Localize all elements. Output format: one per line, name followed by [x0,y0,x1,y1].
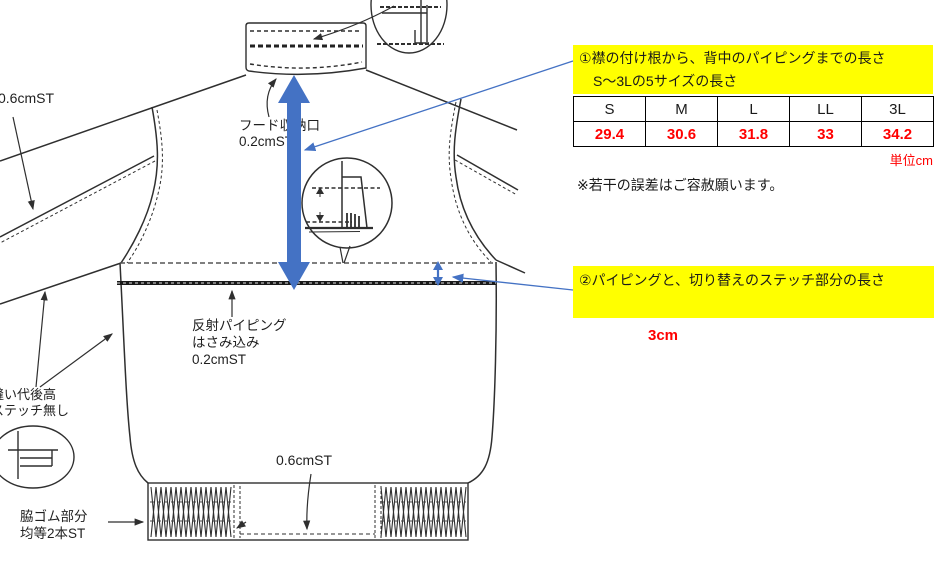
size-header: M [646,97,718,122]
piping-label-line2: はさみ込み [192,334,287,351]
size-value: 31.8 [718,122,790,147]
tolerance-note: ※若干の誤差はご容赦願います。 [577,175,783,195]
side-elastic-label: 脇ゴム部分 均等2本ST [20,508,88,542]
size-header: 3L [862,97,934,122]
piping-label-line3: 0.2cmST [192,351,287,368]
size-table-value-row: 29.4 30.6 31.8 33 34.2 [574,122,934,147]
hem-stitch-label: 0.6cmST [276,452,332,468]
hem-gap-label: 0.6 [240,514,258,529]
callout1-leader-line [305,61,573,150]
collar-stitch-detail-circle [314,0,447,53]
collar [246,23,366,74]
size-header: LL [790,97,862,122]
side-elastic-label-line2: 均等2本ST [20,525,88,542]
callout2-line1: ②パイピングと、切り替えのステッチ部分の長さ [579,270,934,290]
size-value: 30.6 [646,122,718,147]
stitch-detail-measurement: 3.0 [305,197,323,212]
reflective-piping-label: 反射パイピング はさみ込み 0.2cmST [192,317,287,368]
size-table: S M L LL 3L 29.4 30.6 31.8 33 34.2 [573,96,934,147]
seam-allowance-label-line2: ステッチ無し [0,403,69,419]
seam-allowance-label-line1: 縫い代後高 [0,387,69,403]
blue-measure-arrow [278,75,310,290]
side-elastic-label-line1: 脇ゴム部分 [20,508,88,525]
piping-label-line1: 反射パイピング [192,317,287,334]
callout-leader-lines [305,61,573,290]
sleeve-stitch-label: 0.6cmST [0,90,54,106]
size-value: 34.2 [862,122,934,147]
hem-elastic-band [148,483,468,540]
garment-spec-sheet: { "callout1": { "line1": "①襟の付け根から、背中のパイ… [0,0,948,574]
seam-allowance-label: 縫い代後高 ステッチ無し [0,387,69,419]
hood-pocket-label-line1: フード収納口 [239,118,320,134]
hood-pocket-label: フード収納口 0.2cmST [239,118,320,150]
size-value: 33 [790,122,862,147]
callout1-line2: S〜3Lの5サイズの長さ [579,70,933,93]
callout1-line1: ①襟の付け根から、背中のパイピングまでの長さ [579,47,933,70]
seam-detail-ellipse [0,426,74,488]
unit-label: 単位cm [833,150,933,169]
callout-collar-to-piping: ①襟の付け根から、背中のパイピングまでの長さ S〜3Lの5サイズの長さ [573,45,933,94]
size-value: 29.4 [574,122,646,147]
size-header: S [574,97,646,122]
size-header: L [718,97,790,122]
hood-pocket-label-line2: 0.2cmST [239,134,320,150]
back-piping [117,263,496,283]
blue-gap-arrow [433,261,443,286]
size-table-header-row: S M L LL 3L [574,97,934,122]
callout-piping-stitch: ②パイピングと、切り替えのステッチ部分の長さ [573,266,934,318]
piping-stitch-value: 3cm [648,327,678,344]
callout2-leader-line [453,277,573,290]
